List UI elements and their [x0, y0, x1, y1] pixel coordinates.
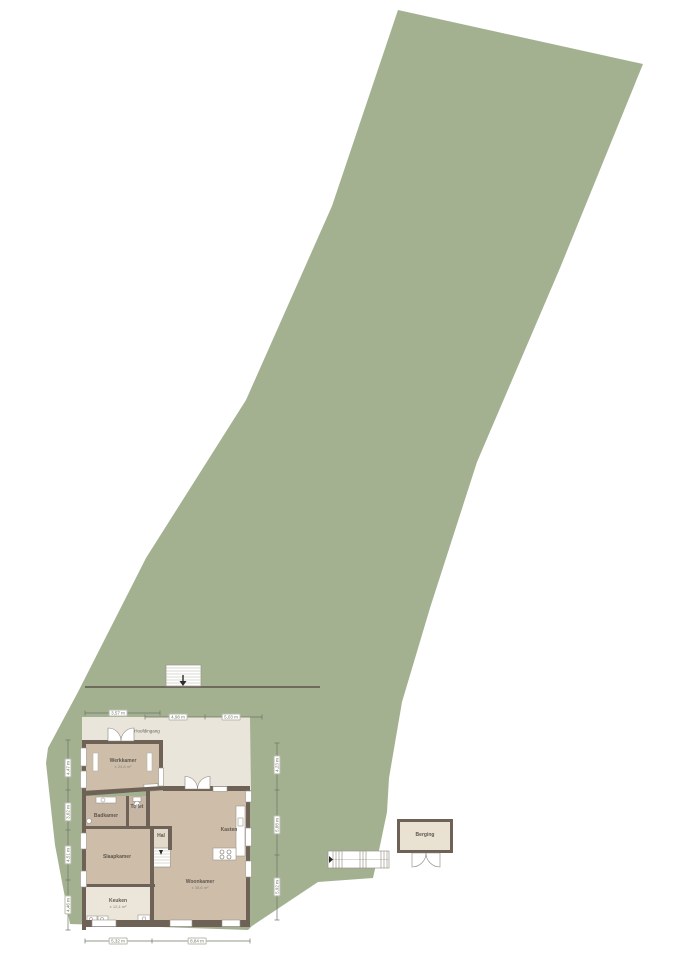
dim-bottom-1: 5,32 m: [109, 938, 128, 945]
corridor-floor: [149, 791, 170, 829]
entrance-label: Hoofdingang: [134, 728, 160, 733]
berging-doors: [412, 853, 440, 867]
berging-building: [397, 819, 453, 867]
dim-right-1: 4,23 m: [274, 756, 281, 775]
room-label-toilet: Toilet: [131, 805, 144, 811]
floorplan-canvas: Hoofdingang Werkkamer ± 24,8 m² Badkamer…: [0, 0, 679, 960]
room-label-kasten: Kasten: [221, 828, 238, 834]
dim-left-3: 4,51 m: [65, 846, 72, 865]
room-label-keuken: Keuken ± 12,4 m²: [109, 899, 127, 909]
woonkamer-area: ± 38,6 m²: [186, 886, 215, 891]
dim-left-1: 4,47 m: [65, 759, 72, 778]
dim-bottom-2: 8,84 m: [188, 938, 207, 945]
room-label-hal: Hal: [157, 834, 165, 840]
stairs-icon: [152, 848, 171, 867]
dim-right-3: 5,92 m: [274, 878, 281, 897]
slope-stairs-icon: [328, 851, 389, 868]
room-label-werkkamer: Werkkamer ± 24,8 m²: [110, 759, 137, 769]
dim-top-1: 3,57 m: [109, 710, 128, 717]
dim-left-2: 3,62 m: [65, 803, 72, 822]
keuken-area: ± 12,4 m²: [109, 905, 127, 910]
werkkamer-area: ± 24,8 m²: [110, 765, 137, 770]
room-label-berging: Berging: [416, 833, 435, 839]
room-label-woonkamer: Woonkamer ± 38,6 m²: [186, 880, 215, 890]
dim-top-3: 5,03 m: [222, 714, 241, 721]
room-label-badkamer: Badkamer: [94, 814, 118, 820]
garden-stairs-icon: [166, 665, 201, 686]
room-label-slaapkamer: Slaapkamer: [103, 855, 131, 861]
dim-left-4: 4,46 m: [65, 896, 72, 915]
dim-top-2: 4,98 m: [169, 714, 188, 721]
dim-right-2: 5,88 m: [274, 816, 281, 835]
